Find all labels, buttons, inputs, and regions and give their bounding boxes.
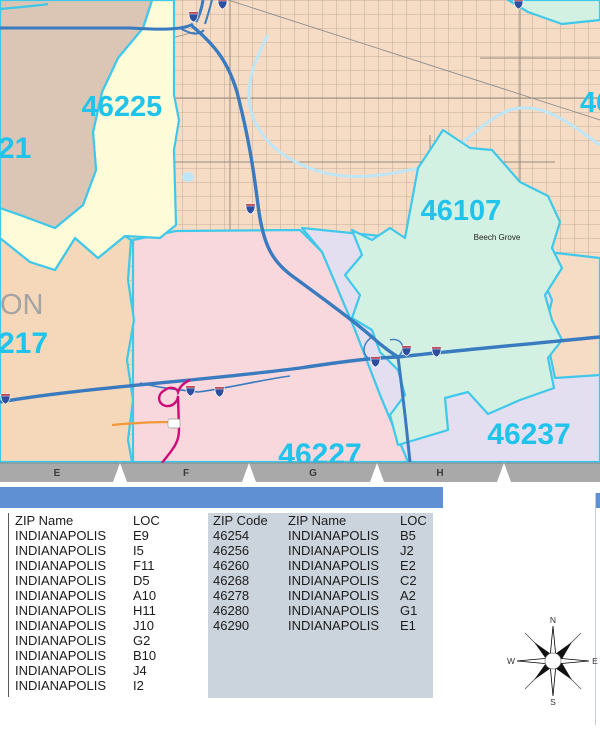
table-header-bar — [0, 487, 443, 508]
table-cell: INDIANAPOLIS — [288, 528, 379, 543]
table-row: 46256INDIANAPOLISJ2 — [0, 543, 600, 558]
table-header-row: ZIP CodeZIP NameLOC — [0, 513, 600, 528]
table-cell: C2 — [400, 573, 417, 588]
compass-label-w: W — [507, 656, 515, 666]
table-cell: 46256 — [213, 543, 249, 558]
table-cell: INDIANAPOLIS — [15, 678, 106, 693]
table-cell: INDIANAPOLIS — [288, 618, 379, 633]
county-label-cut: ON — [0, 289, 44, 321]
table-cell: B10 — [133, 648, 156, 663]
compass-label-s: S — [550, 697, 556, 707]
map-grid-ruler: E F G H — [0, 463, 600, 482]
column-header: ZIP Code — [213, 513, 268, 528]
table-cell: 46260 — [213, 558, 249, 573]
table-cell: INDIANAPOLIS — [288, 573, 379, 588]
route-badge — [168, 419, 180, 428]
compass-label-e: E — [592, 656, 598, 666]
compass-label-n: N — [550, 615, 556, 625]
table-cell: J4 — [133, 663, 147, 678]
column-header: LOC — [400, 513, 427, 528]
table-cell: 46254 — [213, 528, 249, 543]
table-cell: INDIANAPOLIS — [15, 663, 106, 678]
table-cell: 46278 — [213, 588, 249, 603]
table-cell: INDIANAPOLIS — [288, 558, 379, 573]
table-cell: 46280 — [213, 603, 249, 618]
column-header: ZIP Name — [288, 513, 346, 528]
table-cell: J2 — [400, 543, 414, 558]
zip-label-46107: 46107 — [421, 195, 502, 227]
compass-rose: N E S W — [505, 614, 600, 724]
table-row: 46278INDIANAPOLISA2 — [0, 588, 600, 603]
table-cell: INDIANAPOLIS — [288, 603, 379, 618]
table-cell: A2 — [400, 588, 416, 603]
table-cell: 46290 — [213, 618, 249, 633]
table-cell: INDIANAPOLIS — [15, 633, 106, 648]
zip-label-46225: 46225 — [82, 91, 163, 123]
zip-label-right-cut: 46 — [580, 87, 600, 119]
zip-label-46221-cut: 21 — [0, 132, 31, 165]
table-cell: INDIANAPOLIS — [288, 588, 379, 603]
table-row: 46268INDIANAPOLISC2 — [0, 573, 600, 588]
table-row: 46260INDIANAPOLISE2 — [0, 558, 600, 573]
table-cell: INDIANAPOLIS — [288, 543, 379, 558]
table-cell: G1 — [400, 603, 417, 618]
ruler-letter-h: H — [436, 468, 443, 479]
table-cell: G2 — [133, 633, 150, 648]
zip-label-46237: 46237 — [487, 418, 570, 451]
table-cell: INDIANAPOLIS — [15, 648, 106, 663]
table-cell: 46268 — [213, 573, 249, 588]
table-cell: I2 — [133, 678, 144, 693]
ruler-letter-e: E — [54, 468, 61, 479]
table-cell: E2 — [400, 558, 416, 573]
zip-code-map[interactable]: 46225 21 217 46107 46227 46237 46 ON Bee… — [0, 0, 600, 482]
ruler-letter-f: F — [183, 468, 189, 479]
zip-table-panel: ZIP NameLOCINDIANAPOLISE9INDIANAPOLISI5I… — [0, 482, 600, 725]
compass-center — [545, 653, 561, 669]
table-cell: E1 — [400, 618, 416, 633]
zip-label-46217-cut: 217 — [0, 327, 48, 360]
table-row: 46254INDIANAPOLISB5 — [0, 528, 600, 543]
place-label-beech-grove: Beech Grove — [474, 233, 521, 242]
table-cell: B5 — [400, 528, 416, 543]
ruler-letter-g: G — [309, 468, 317, 479]
